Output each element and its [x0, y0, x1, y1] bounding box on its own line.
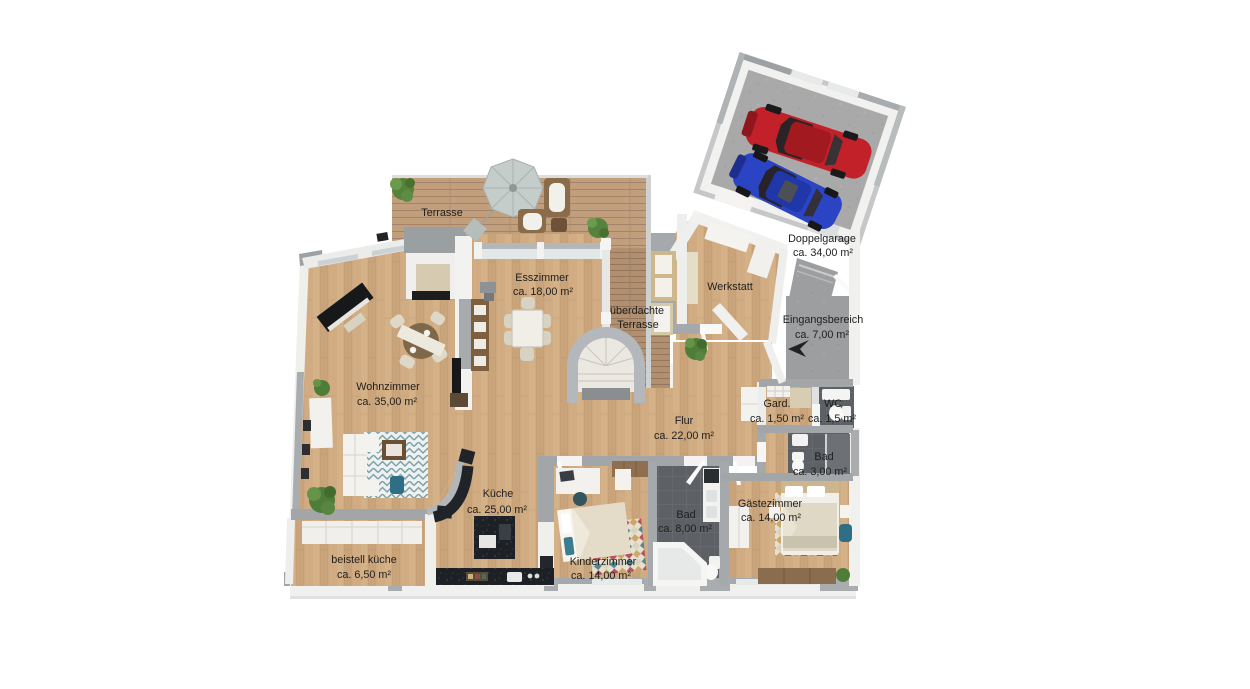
svg-text:Werkstatt: Werkstatt [707, 281, 752, 293]
svg-text:ca. 1,50 m²: ca. 1,50 m² [750, 413, 804, 425]
svg-text:Kinderzimmer: Kinderzimmer [570, 556, 637, 568]
svg-text:Flur: Flur [675, 415, 694, 427]
svg-text:Doppelgarage: Doppelgarage [788, 233, 856, 245]
svg-text:überdachte: überdachte [610, 305, 664, 317]
svg-text:Wohnzimmer: Wohnzimmer [356, 381, 420, 393]
svg-text:ca. 14,00 m²: ca. 14,00 m² [571, 570, 631, 582]
svg-text:ca. 7,00 m²: ca. 7,00 m² [795, 329, 849, 341]
svg-text:Küche: Küche [483, 488, 514, 500]
svg-text:ca. 25,00 m²: ca. 25,00 m² [467, 504, 527, 516]
svg-text:WC: WC [824, 398, 842, 410]
svg-text:Gard.: Gard. [763, 398, 790, 410]
svg-text:Terrasse: Terrasse [421, 207, 462, 219]
svg-text:Bad: Bad [814, 451, 833, 463]
svg-text:ca. 22,00 m²: ca. 22,00 m² [654, 430, 714, 442]
svg-text:Terrasse: Terrasse [617, 319, 658, 331]
svg-text:Gästezimmer: Gästezimmer [738, 498, 803, 510]
svg-text:ca. 6,50 m²: ca. 6,50 m² [337, 569, 391, 581]
svg-text:ca. 18,00 m²: ca. 18,00 m² [513, 286, 573, 298]
svg-text:ca. 3,00 m²: ca. 3,00 m² [793, 466, 847, 478]
svg-text:beistell küche: beistell küche [331, 554, 396, 566]
svg-text:Esszimmer: Esszimmer [515, 272, 569, 284]
svg-text:ca. 34,00 m²: ca. 34,00 m² [793, 247, 853, 259]
svg-text:ca. 35,00 m²: ca. 35,00 m² [357, 396, 417, 408]
svg-text:Eingangsbereich: Eingangsbereich [783, 314, 863, 326]
svg-text:ca. 8,00 m²: ca. 8,00 m² [658, 523, 712, 535]
svg-text:ca. 1,5 m²: ca. 1,5 m² [808, 413, 856, 425]
svg-text:ca. 14,00 m²: ca. 14,00 m² [741, 512, 801, 524]
svg-text:Bad: Bad [676, 509, 695, 521]
